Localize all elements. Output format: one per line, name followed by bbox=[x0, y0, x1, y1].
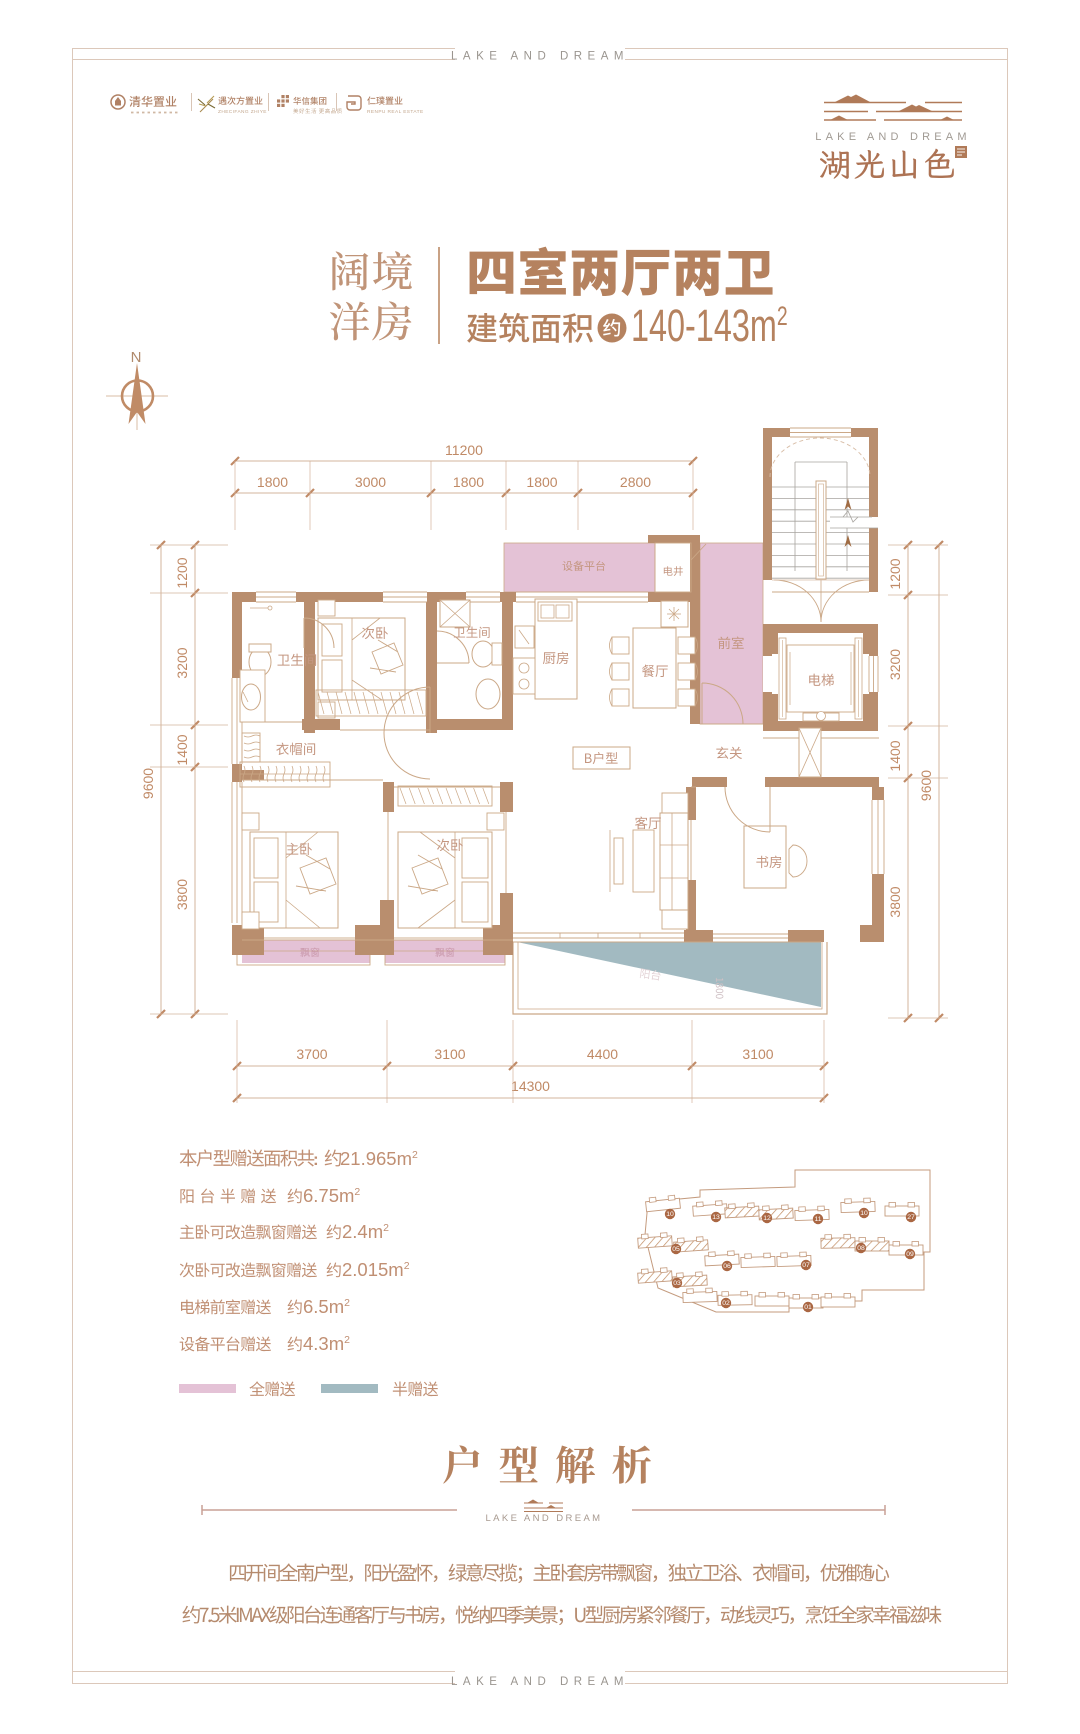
svg-text:3000: 3000 bbox=[355, 474, 386, 490]
svg-text:10: 10 bbox=[666, 1211, 674, 1218]
svg-text:1800: 1800 bbox=[257, 474, 288, 490]
svg-text:06: 06 bbox=[723, 1263, 731, 1270]
svg-text:11200: 11200 bbox=[445, 442, 483, 458]
svg-text:13: 13 bbox=[712, 1214, 720, 1221]
svg-text:3200: 3200 bbox=[174, 647, 190, 678]
svg-text:N: N bbox=[131, 349, 142, 366]
svg-text:05: 05 bbox=[672, 1246, 680, 1253]
svg-text:3700: 3700 bbox=[296, 1046, 327, 1062]
svg-text:3100: 3100 bbox=[434, 1046, 465, 1062]
svg-text:02: 02 bbox=[722, 1300, 730, 1307]
svg-text:3800: 3800 bbox=[887, 886, 903, 917]
svg-text:2.015m2: 2.015m2 bbox=[342, 1259, 410, 1280]
svg-text:11: 11 bbox=[814, 1216, 821, 1223]
svg-text:9600: 9600 bbox=[918, 770, 934, 801]
svg-text:09: 09 bbox=[906, 1251, 914, 1258]
svg-text:ZHECIFANG ZHIYE: ZHECIFANG ZHIYE bbox=[218, 109, 267, 115]
svg-text:9600: 9600 bbox=[140, 768, 156, 799]
svg-text:1800: 1800 bbox=[526, 474, 557, 490]
svg-text:RENPU REAL ESTATE: RENPU REAL ESTATE bbox=[367, 109, 424, 115]
svg-text::: : bbox=[313, 1150, 319, 1169]
svg-text:LAKE AND DREAM: LAKE AND DREAM bbox=[451, 51, 629, 63]
svg-text:14300: 14300 bbox=[511, 1078, 550, 1094]
svg-text:21.965m2: 21.965m2 bbox=[340, 1148, 418, 1169]
svg-text:07: 07 bbox=[802, 1262, 810, 1269]
svg-text:4.3m2: 4.3m2 bbox=[303, 1333, 350, 1354]
svg-text:01: 01 bbox=[804, 1304, 812, 1311]
svg-text:03: 03 bbox=[673, 1280, 681, 1287]
svg-text:1200: 1200 bbox=[887, 558, 903, 589]
svg-text:1400: 1400 bbox=[174, 734, 190, 765]
svg-text:08: 08 bbox=[857, 1245, 865, 1252]
svg-text:LAKE AND DREAM: LAKE AND DREAM bbox=[485, 1513, 602, 1524]
svg-text:2.4m2: 2.4m2 bbox=[342, 1221, 389, 1242]
svg-text:4400: 4400 bbox=[587, 1046, 618, 1062]
svg-text:3800: 3800 bbox=[174, 879, 190, 910]
svg-text:140-143m2: 140-143m2 bbox=[631, 301, 788, 351]
svg-text:3200: 3200 bbox=[887, 649, 903, 680]
svg-text:12: 12 bbox=[763, 1215, 771, 1222]
svg-text:1800: 1800 bbox=[453, 474, 484, 490]
svg-text:LAKE AND DREAM: LAKE AND DREAM bbox=[815, 131, 970, 143]
svg-text:2800: 2800 bbox=[620, 474, 651, 490]
svg-text:1400: 1400 bbox=[887, 740, 903, 771]
svg-text:1200: 1200 bbox=[174, 557, 190, 588]
svg-text:LAKE AND DREAM: LAKE AND DREAM bbox=[451, 1676, 629, 1688]
svg-text:3100: 3100 bbox=[742, 1046, 773, 1062]
svg-text:6.5m2: 6.5m2 bbox=[303, 1296, 350, 1317]
svg-text:27: 27 bbox=[907, 1214, 915, 1221]
svg-text:6.75m2: 6.75m2 bbox=[303, 1185, 360, 1206]
svg-text:10: 10 bbox=[860, 1210, 868, 1217]
